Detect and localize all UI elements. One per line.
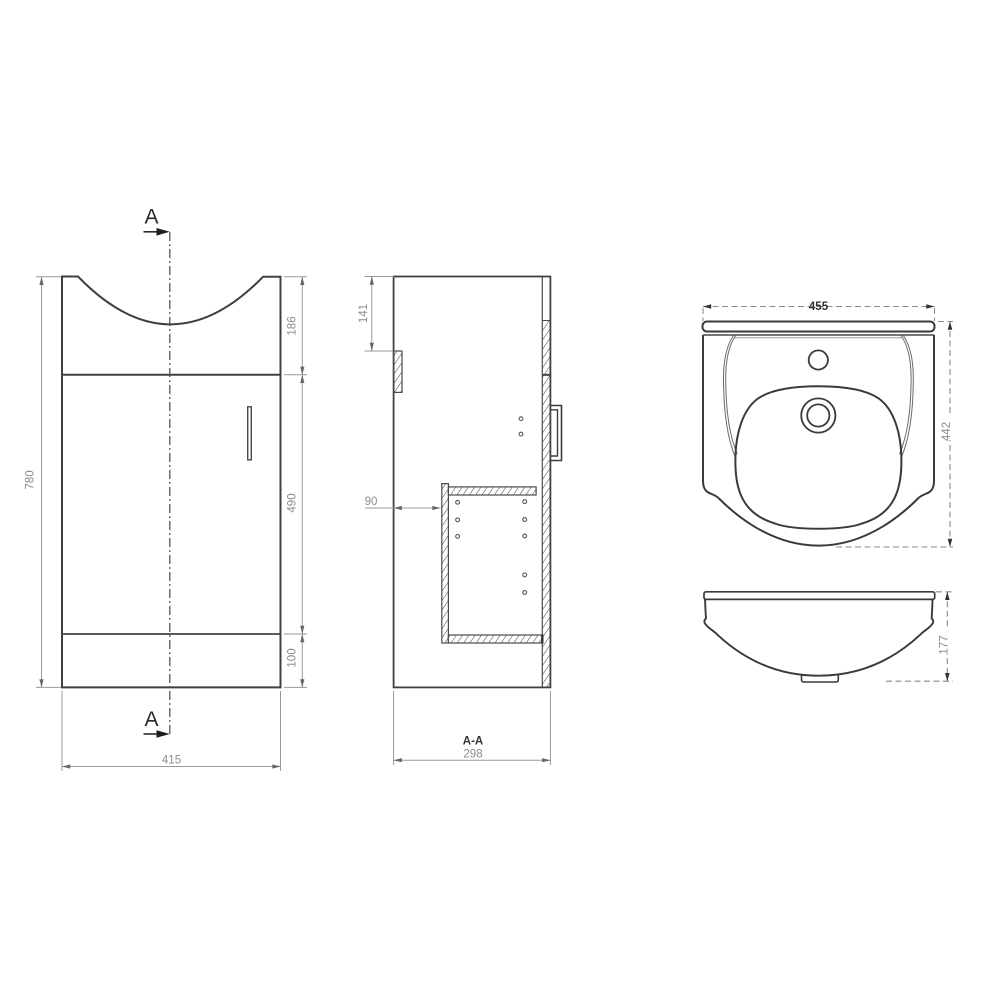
svg-text:490: 490 bbox=[287, 493, 299, 512]
svg-text:455: 455 bbox=[809, 301, 829, 313]
svg-text:141: 141 bbox=[358, 304, 370, 323]
svg-text:100: 100 bbox=[287, 648, 299, 667]
svg-text:415: 415 bbox=[162, 755, 181, 767]
svg-text:780: 780 bbox=[25, 470, 37, 489]
svg-text:A: A bbox=[144, 206, 158, 229]
svg-text:A: A bbox=[144, 708, 158, 731]
svg-text:177: 177 bbox=[938, 635, 950, 654]
svg-text:298: 298 bbox=[463, 749, 482, 761]
svg-text:186: 186 bbox=[287, 316, 299, 335]
svg-text:A-A: A-A bbox=[463, 736, 483, 748]
svg-text:442: 442 bbox=[941, 422, 953, 441]
svg-text:90: 90 bbox=[365, 496, 378, 508]
